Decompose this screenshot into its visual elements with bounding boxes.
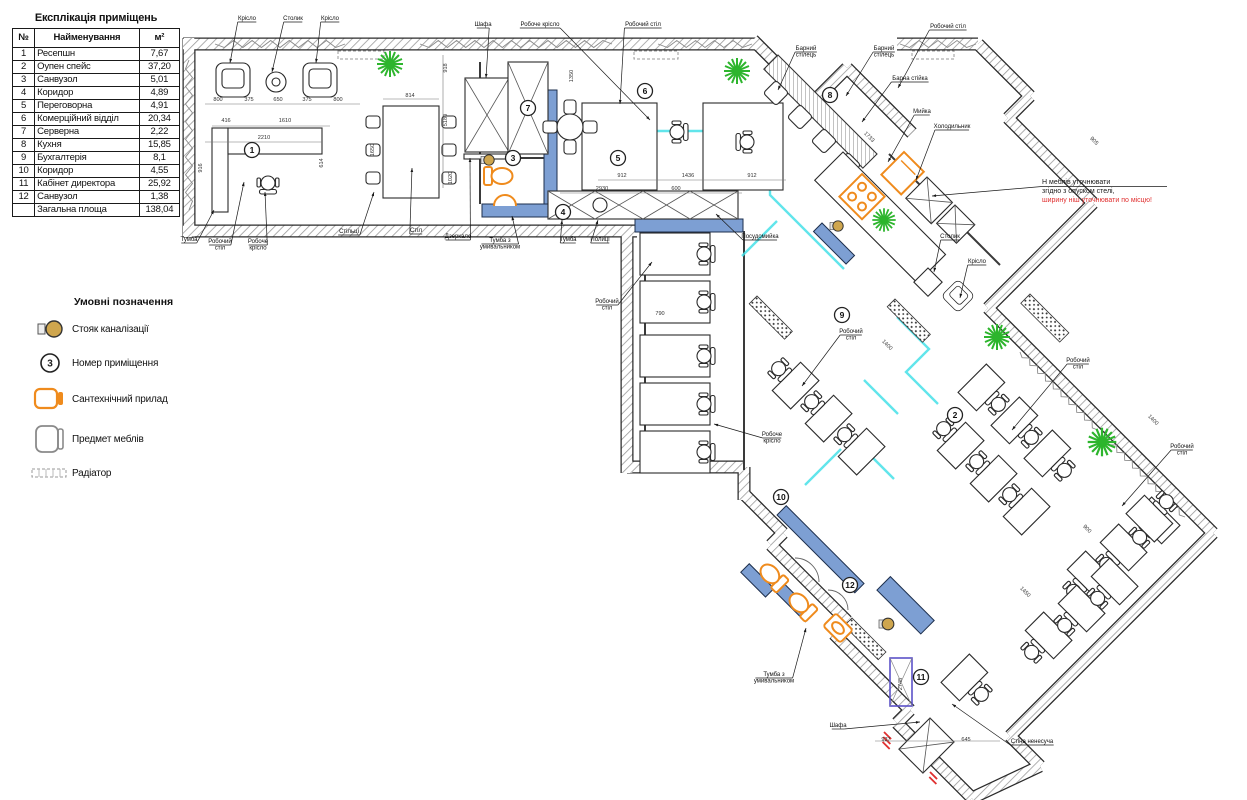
dimension-label: 650: [273, 97, 282, 103]
room-number-text: 5: [616, 153, 621, 163]
dimension-label: 800: [333, 97, 342, 103]
furniture-label: Стіна ненесуча: [1011, 739, 1054, 745]
furniture-label: Столик: [940, 234, 960, 240]
dimension-label: 912: [617, 173, 626, 179]
workstation-column: [640, 233, 715, 473]
room-number-text: 7: [526, 103, 531, 113]
dimension-label: 937: [881, 737, 890, 743]
radiators: [338, 51, 954, 59]
dimension-label: 5180: [443, 114, 449, 126]
accounting-desks: [760, 350, 885, 475]
furniture-label: Дзеркало: [445, 234, 472, 240]
dimension-label: 1610: [279, 118, 291, 124]
furniture-label: Мийка: [913, 108, 931, 115]
dimension-label: 800: [213, 97, 222, 103]
dimension-label: 645: [961, 737, 970, 743]
floor-plan-sheet: Експлікація приміщень № Найменування м² …: [0, 0, 1247, 800]
room-number-text: 9: [840, 310, 845, 320]
furniture-label: Тумба: [181, 237, 199, 243]
room-number-text: 6: [643, 86, 648, 96]
dimension-label: 1436: [682, 173, 694, 179]
wardrobe: [464, 78, 509, 159]
note-line: ширину ніш уточнювати по місцю!: [1042, 196, 1152, 204]
annotation-note: Н меблів уточнюватизгідно з опуском стел…: [932, 178, 1167, 204]
furniture-label: Полиці: [590, 237, 609, 243]
furniture-label: Крісло: [321, 16, 340, 22]
note-line: згідно з опуском стелі,: [1042, 187, 1115, 195]
room-number-text: 2: [953, 410, 958, 420]
furniture-label: Барна стійка: [892, 75, 928, 82]
room-number-text: 11: [917, 672, 926, 682]
note-line: Н меблів уточнювати: [1042, 178, 1110, 186]
furniture-label: Робочий стіл: [930, 23, 966, 30]
dimension-label: 375: [302, 97, 311, 103]
room-number-text: 1: [250, 145, 255, 155]
dimension-label: 1350: [569, 70, 575, 82]
furniture-label: Шафа: [474, 22, 492, 28]
open-space-desks: [925, 364, 1186, 671]
dimension-label: 2930: [596, 186, 608, 192]
dimension-label: 900: [1081, 524, 1092, 535]
room-number-text: 3: [511, 153, 516, 163]
dimension-label: 912: [747, 173, 756, 179]
dimension-label: 814: [405, 93, 414, 99]
dimension-label: 918: [443, 63, 449, 72]
furniture-label: Робочий стіл: [625, 21, 661, 28]
dimension-label: 2210: [258, 135, 270, 141]
kitchen-cabinets: [548, 191, 738, 219]
furniture-label: Посудомийка: [741, 233, 779, 240]
furniture-label: Шафа: [829, 723, 847, 729]
floor-plan-svg: 8003756503758004161610221091661481416501…: [0, 0, 1247, 800]
dimension-label: 600: [671, 186, 680, 192]
furniture-label: Крісло: [238, 16, 257, 22]
furniture-label: Столик: [283, 16, 303, 22]
furniture-label: Крісло: [968, 259, 987, 265]
dimension-label: 1650: [370, 144, 376, 156]
furniture-label: Холодильник: [934, 124, 971, 130]
furniture-label: Стільці: [339, 229, 359, 235]
room-number-text: 4: [561, 207, 566, 217]
dimension-label: 2745: [898, 678, 904, 690]
room-number-text: 12: [845, 580, 855, 590]
dimension-label: 1450: [1018, 586, 1031, 599]
dimension-label: 905: [1088, 136, 1099, 147]
furniture-label: Стіл: [410, 228, 422, 234]
room-number-text: 10: [776, 492, 786, 502]
dimension-label: 1020: [448, 172, 454, 184]
reception-zone: [212, 63, 337, 212]
dimension-label: 416: [221, 118, 230, 124]
dimension-label: 916: [198, 163, 204, 172]
dimension-label: 1400: [1146, 414, 1159, 427]
furniture-label: Тумба: [560, 237, 578, 243]
furniture-label: Робоче крісло: [520, 22, 560, 28]
dimension-label: 1400: [880, 339, 893, 352]
demolition-mark: [927, 772, 939, 784]
dimension-label: 790: [655, 311, 664, 317]
dimension-label: 375: [244, 97, 253, 103]
room-number-text: 8: [828, 90, 833, 100]
dimension-label: 614: [319, 158, 325, 167]
